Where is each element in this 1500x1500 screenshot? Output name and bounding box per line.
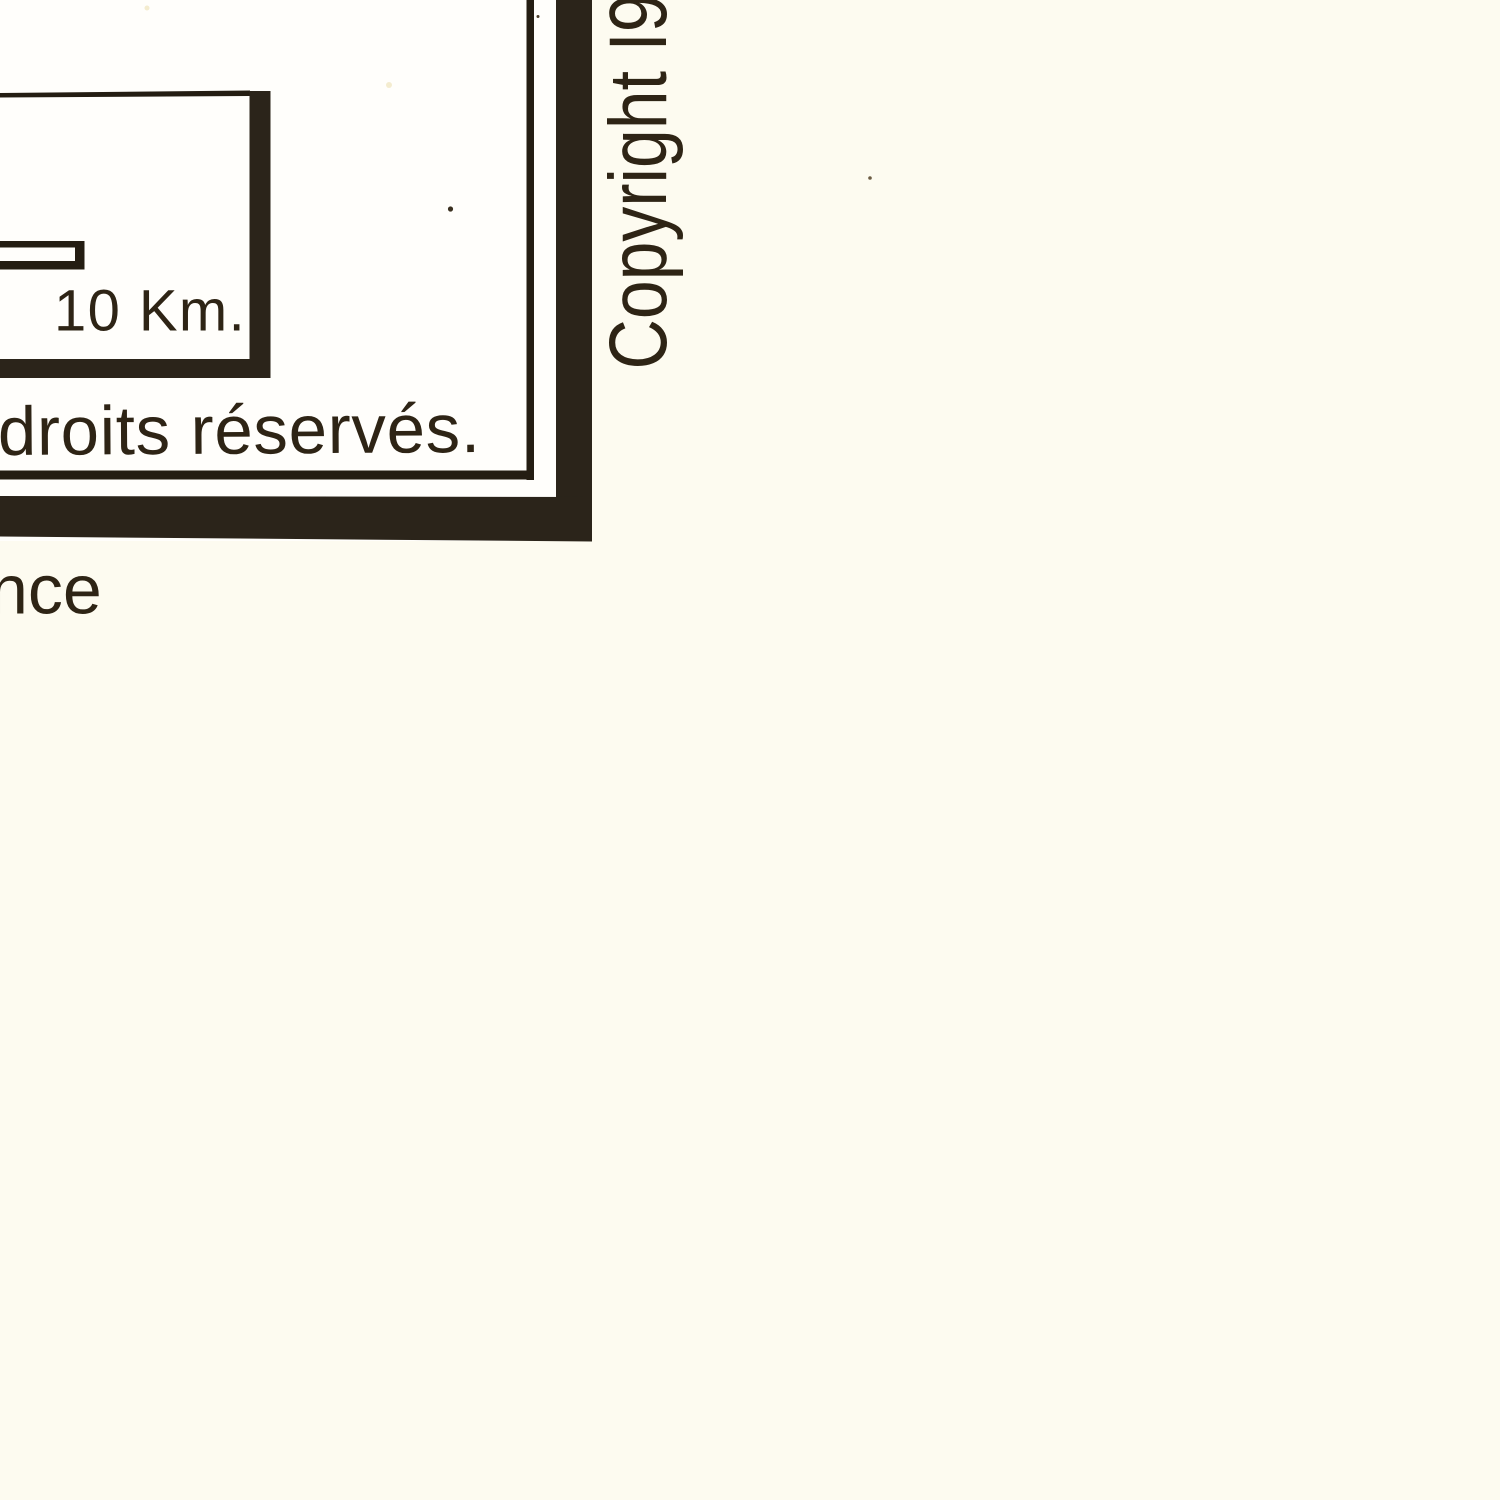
svg-text:Copyright I9: Copyright I9 xyxy=(593,0,684,370)
svg-text:10 Km.: 10 Km. xyxy=(54,279,246,344)
svg-text:droits réservés.: droits réservés. xyxy=(0,390,481,470)
svg-text:nce: nce xyxy=(0,551,102,629)
